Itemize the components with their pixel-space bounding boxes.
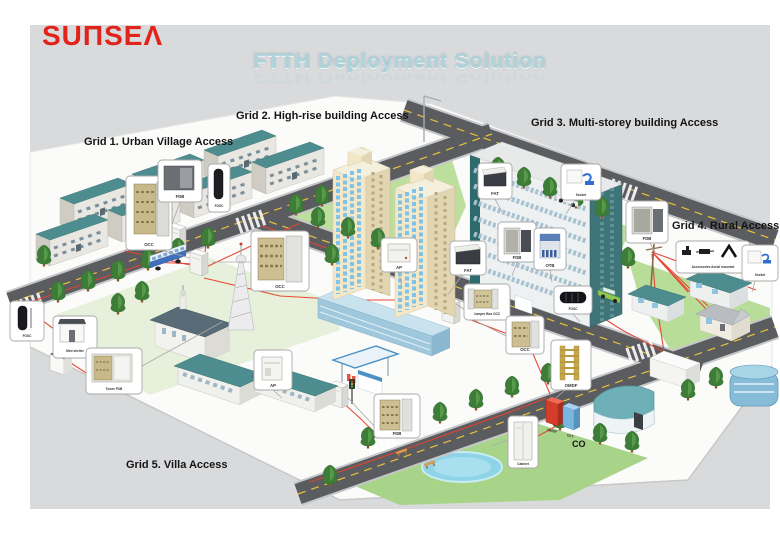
callout-fdb-1: FDB bbox=[158, 160, 202, 202]
svg-text:Mini shelter: Mini shelter bbox=[66, 349, 84, 353]
svg-text:Socket: Socket bbox=[755, 273, 766, 277]
callout-occ-3: OCC bbox=[506, 316, 544, 354]
svg-text:Tower FDB: Tower FDB bbox=[106, 387, 123, 391]
svg-text:FDB: FDB bbox=[393, 431, 402, 436]
ftth-diagram: OMDF OLT CO bbox=[0, 0, 780, 534]
callout-fosc-1: FOSC bbox=[208, 164, 230, 212]
callout-jumper-box-occ: Jumper Box OCC bbox=[464, 284, 510, 320]
svg-text:AP: AP bbox=[396, 265, 402, 270]
ap-panel-icon bbox=[388, 244, 410, 262]
grid4-label: Grid 4. Rural Access bbox=[672, 220, 779, 232]
callout-socket-2: Socket bbox=[742, 245, 778, 281]
callout-tower-fdb: Tower FDB bbox=[86, 348, 142, 394]
svg-text:FAT: FAT bbox=[464, 268, 472, 273]
jumper-box-icon bbox=[474, 290, 492, 308]
callout-aerial-accessories: Accessories Aerial mounted bbox=[676, 241, 750, 273]
aerial-clamp-icon bbox=[682, 250, 691, 255]
title-block: FTTH Deployment Solution FTTH Deployment… bbox=[240, 50, 560, 87]
grid1-label: Grid 1. Urban Village Access bbox=[84, 136, 233, 148]
socket-plate-icon bbox=[748, 251, 761, 263]
callout-fosc-2: FOSC bbox=[554, 286, 592, 314]
mini-shelter-icon bbox=[58, 319, 86, 324]
svg-text:Socket: Socket bbox=[576, 193, 587, 197]
socket-plate-icon bbox=[567, 170, 582, 183]
callout-fdb-2: FDB bbox=[498, 222, 536, 262]
occ-cabinet-icon bbox=[258, 238, 284, 280]
svg-text:OMDF: OMDF bbox=[565, 383, 578, 388]
grid3-label: Grid 3. Multi-storey building Access bbox=[531, 117, 718, 129]
svg-text:OCC: OCC bbox=[144, 242, 154, 247]
page-title-reflection: FTTH Deployment Solution bbox=[240, 74, 560, 87]
svg-text:FOSC: FOSC bbox=[569, 307, 579, 311]
callout-occ-2: OCC bbox=[251, 231, 309, 291]
callout-fosc-3: FOSC bbox=[10, 301, 44, 341]
fosc-closure-icon bbox=[560, 292, 586, 303]
grid2-label: Grid 2. High-rise building Access bbox=[236, 110, 409, 122]
svg-text:Jumper Box OCC: Jumper Box OCC bbox=[474, 312, 501, 316]
callout-ap-2: AP bbox=[254, 350, 292, 390]
co-label: CO bbox=[572, 439, 586, 449]
occ-cabinet-icon bbox=[512, 322, 530, 347]
svg-text:FDB: FDB bbox=[513, 255, 522, 260]
callout-ap-1: AP bbox=[381, 238, 417, 272]
svg-text:Accessories Aerial mounted: Accessories Aerial mounted bbox=[692, 265, 735, 269]
svg-text:FDB: FDB bbox=[176, 194, 185, 199]
callout-socket-1: Socket bbox=[561, 164, 601, 200]
callout-fdb-4: FDB bbox=[374, 394, 420, 438]
svg-text:FOSC: FOSC bbox=[215, 204, 225, 208]
svg-text:Cabinet: Cabinet bbox=[517, 462, 530, 466]
svg-text:FOSC: FOSC bbox=[23, 334, 33, 338]
callout-fat-2: FAT bbox=[478, 163, 512, 199]
callout-cabinet: Cabinet bbox=[508, 416, 538, 468]
occ-street-cabinet bbox=[190, 249, 208, 276]
fosc-closure-icon bbox=[18, 306, 27, 330]
fosc-closure-icon bbox=[214, 169, 223, 199]
svg-text:OCC: OCC bbox=[275, 284, 285, 289]
svg-text:FDB: FDB bbox=[643, 236, 652, 241]
grid5-label: Grid 5. Villa Access bbox=[126, 459, 228, 471]
svg-text:AP: AP bbox=[270, 383, 276, 388]
svg-text:OCC: OCC bbox=[520, 347, 530, 352]
callout-fat-1: FAT bbox=[450, 241, 486, 275]
page-title: FTTH Deployment Solution bbox=[240, 50, 560, 74]
callout-omdf: OMDF bbox=[551, 340, 591, 390]
callout-otb-1: OTB bbox=[534, 228, 566, 270]
svg-text:FAT: FAT bbox=[491, 191, 499, 196]
svg-text:OTB: OTB bbox=[545, 263, 554, 268]
callout-fdb-3: FDB bbox=[626, 201, 668, 243]
sunsea-logo: SUΠSEΛ bbox=[42, 20, 163, 52]
